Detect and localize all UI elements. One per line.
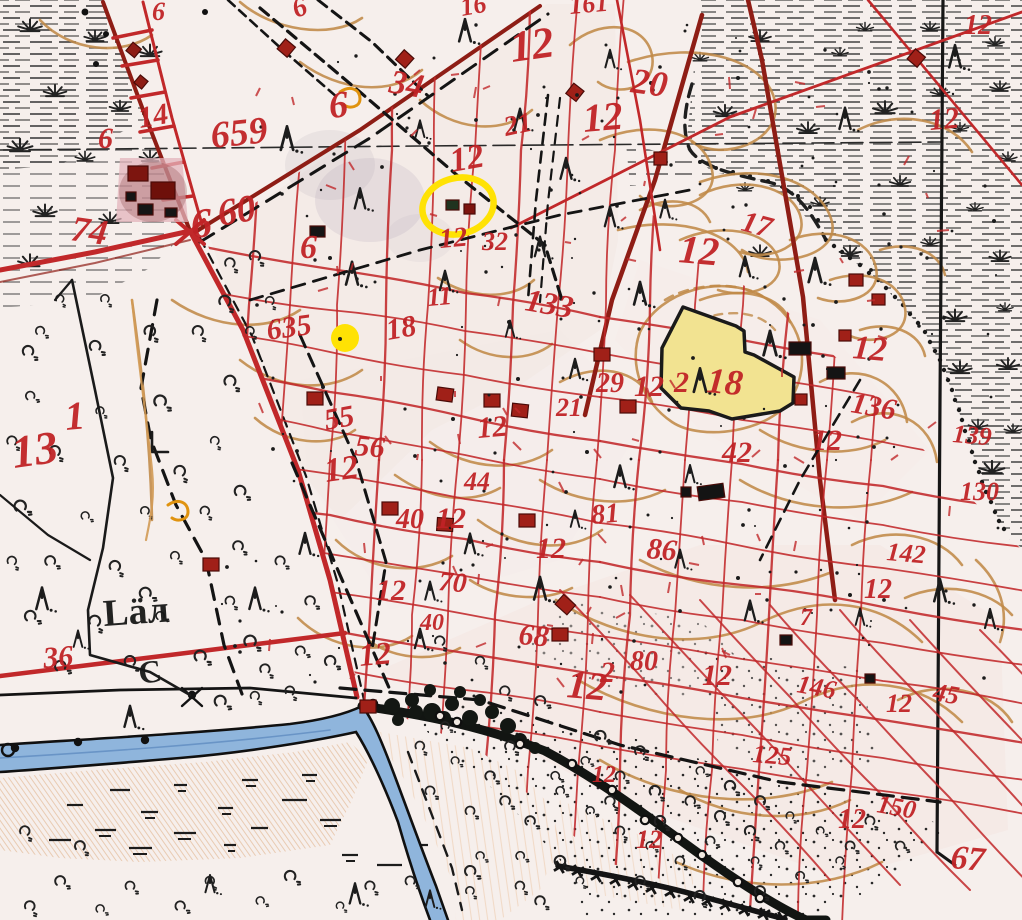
svg-text:12: 12: [357, 634, 392, 673]
svg-text:12: 12: [581, 93, 625, 141]
svg-text:12: 12: [964, 10, 992, 41]
svg-text:6: 6: [300, 229, 317, 266]
svg-text:12: 12: [851, 329, 888, 369]
svg-text:81: 81: [590, 498, 621, 531]
svg-text:130: 130: [960, 477, 999, 506]
svg-text:12: 12: [447, 138, 487, 180]
svg-text:70: 70: [437, 566, 468, 599]
svg-text:161: 161: [568, 0, 609, 20]
svg-text:18: 18: [383, 309, 418, 347]
svg-text:68: 68: [517, 618, 550, 653]
svg-text:6: 6: [152, 0, 165, 26]
svg-text:6: 6: [327, 83, 350, 126]
svg-text:32: 32: [481, 227, 508, 256]
svg-text:21: 21: [555, 393, 582, 422]
svg-text:12: 12: [565, 661, 609, 709]
svg-text:40: 40: [395, 504, 424, 535]
svg-text:55: 55: [321, 399, 356, 437]
svg-text:12: 12: [636, 825, 662, 854]
svg-text:80: 80: [630, 646, 658, 677]
svg-text:67: 67: [949, 839, 988, 879]
svg-text:12: 12: [812, 424, 842, 457]
svg-text:7: 7: [800, 605, 813, 631]
svg-text:12: 12: [376, 574, 406, 607]
svg-text:29: 29: [595, 368, 624, 399]
svg-text:34: 34: [386, 63, 427, 106]
svg-text:40: 40: [419, 610, 444, 636]
svg-text:12: 12: [476, 409, 509, 444]
svg-text:12: 12: [592, 762, 616, 788]
svg-text:13: 13: [8, 421, 61, 478]
svg-text:139: 139: [951, 419, 992, 451]
svg-text:60: 60: [214, 187, 259, 235]
svg-text:Läл: Läл: [102, 588, 170, 634]
svg-text:36: 36: [41, 639, 75, 675]
svg-text:12: 12: [507, 17, 557, 72]
svg-text:125: 125: [751, 739, 792, 771]
svg-text:12: 12: [436, 502, 466, 535]
svg-text:12: 12: [634, 370, 664, 403]
svg-text:11: 11: [426, 281, 453, 312]
svg-text:12: 12: [928, 101, 961, 136]
svg-text:18: 18: [705, 360, 744, 403]
svg-text:86: 86: [645, 532, 678, 567]
svg-text:2: 2: [673, 366, 689, 399]
svg-text:6: 6: [98, 122, 113, 155]
svg-text:45: 45: [930, 677, 962, 710]
svg-text:14: 14: [135, 97, 170, 135]
svg-text:1: 1: [63, 392, 87, 439]
svg-text:12: 12: [864, 574, 892, 605]
svg-text:56: 56: [353, 429, 386, 464]
svg-text:42: 42: [721, 436, 752, 469]
svg-text:12: 12: [536, 532, 566, 565]
svg-text:12: 12: [886, 689, 912, 718]
svg-text:12: 12: [702, 659, 732, 692]
svg-text:12: 12: [838, 804, 866, 835]
svg-text:44: 44: [463, 467, 490, 496]
svg-text:659: 659: [209, 109, 270, 157]
svg-text:12: 12: [677, 226, 721, 274]
svg-text:20: 20: [628, 60, 670, 105]
svg-text:635: 635: [264, 308, 313, 347]
svg-text:6: 6: [189, 200, 214, 248]
svg-text:142: 142: [885, 537, 926, 569]
svg-text:12: 12: [438, 222, 469, 255]
svg-text:74: 74: [69, 208, 110, 253]
